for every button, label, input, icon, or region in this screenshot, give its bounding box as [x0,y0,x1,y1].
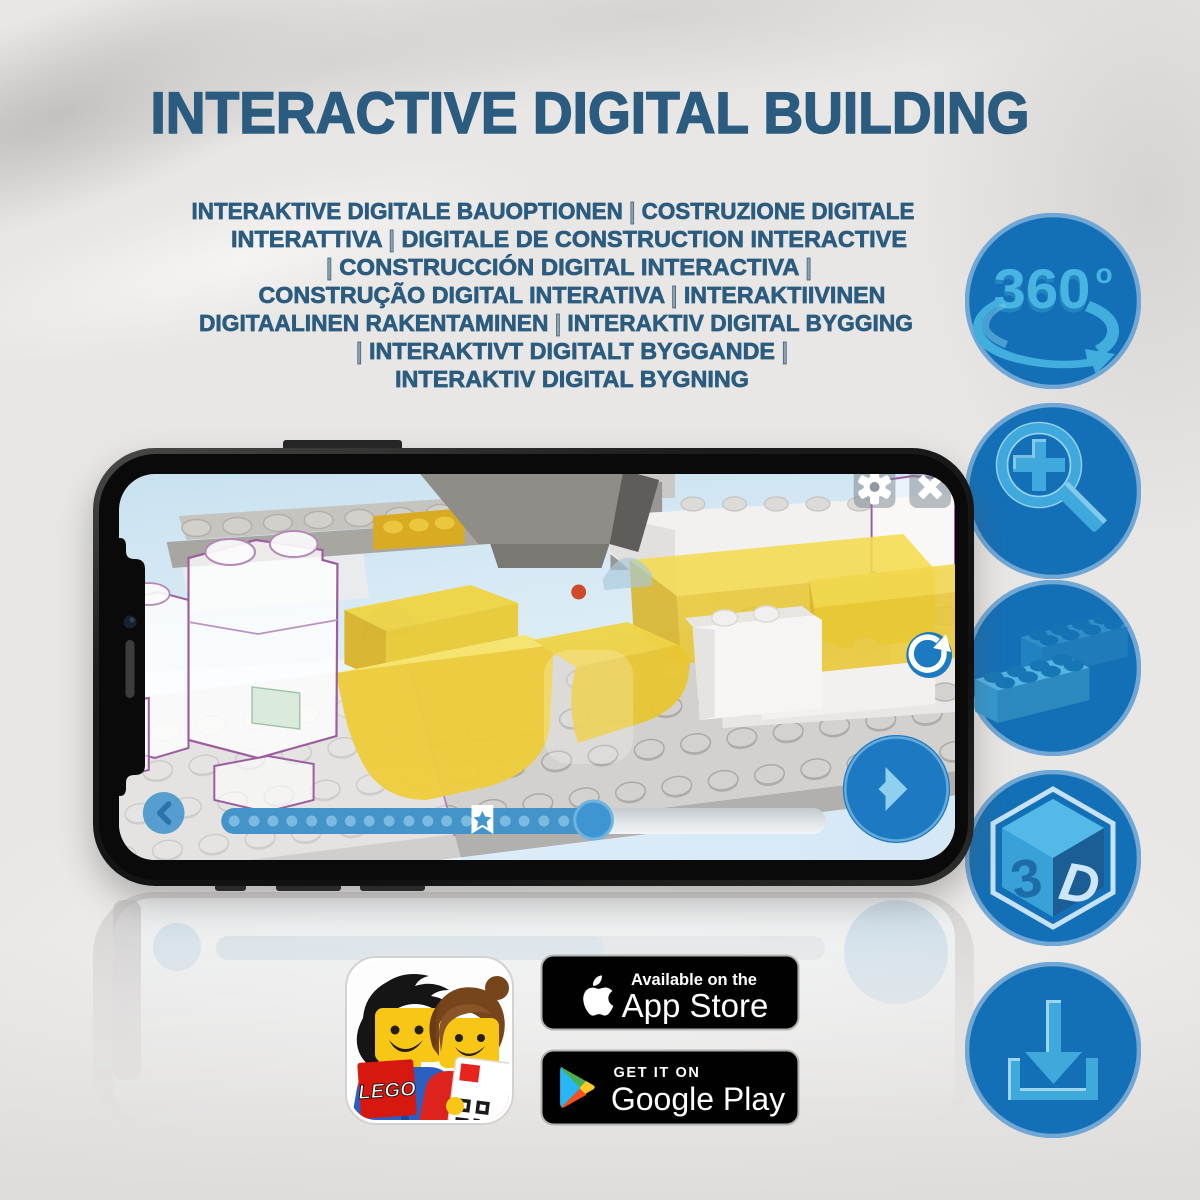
svg-text:INTERAKTIVE DIGITALE BAUOPTION: INTERAKTIVE DIGITALE BAUOPTIONEN | COSTR… [192,198,915,224]
svg-text:Google Play: Google Play [611,1081,785,1117]
svg-text:App Store: App Store [622,987,769,1024]
svg-text:DIGITAALINEN RAKENTAMINEN | IN: DIGITAALINEN RAKENTAMINEN | INTERAKTIV D… [199,310,913,336]
svg-text:GET IT ON: GET IT ON [614,1065,701,1081]
svg-text:360: 360 [994,257,1091,320]
svg-text:LEGO: LEGO [358,1078,417,1104]
svg-text:INTERATTIVA | DIGITALE DE CONS: INTERATTIVA | DIGITALE DE CONSTRUCTION I… [231,226,907,252]
svg-text:| INTERAKTIVT DIGITALT BYGGAND: | INTERAKTIVT DIGITALT BYGGANDE | [356,338,788,364]
svg-text:o: o [1095,258,1112,289]
svg-text:CONSTRUÇÃO DIGITAL INTERATIVA: CONSTRUÇÃO DIGITAL INTERATIVA | INTERAKT… [259,281,886,308]
svg-text:INTERACTIVE DIGITAL BUILDING: INTERACTIVE DIGITAL BUILDING [151,81,1030,146]
svg-text:| CONSTRUCCIÓN DIGITAL INTERAC: | CONSTRUCCIÓN DIGITAL INTERACTIVA | [326,253,812,280]
svg-text:INTERAKTIV DIGITAL BYGNING: INTERAKTIV DIGITAL BYGNING [395,366,749,392]
